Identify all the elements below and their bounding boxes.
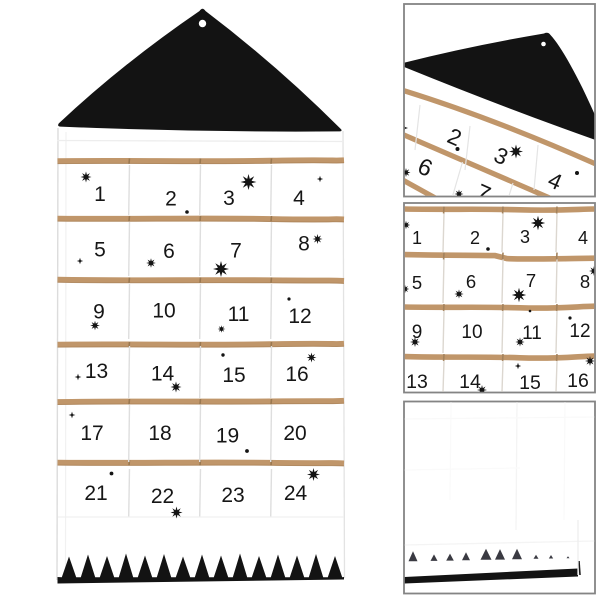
svg-text:12: 12 xyxy=(288,305,311,328)
svg-text:5: 5 xyxy=(94,239,106,262)
svg-text:2: 2 xyxy=(165,188,177,211)
svg-text:17: 17 xyxy=(80,422,103,445)
svg-text:3: 3 xyxy=(223,187,235,210)
svg-text:23: 23 xyxy=(221,484,244,507)
svg-text:13: 13 xyxy=(406,371,428,393)
svg-text:13: 13 xyxy=(85,360,108,383)
svg-text:6: 6 xyxy=(466,271,476,292)
svg-text:11: 11 xyxy=(522,323,542,344)
svg-text:15: 15 xyxy=(222,364,245,387)
svg-text:24: 24 xyxy=(284,482,308,505)
svg-text:16: 16 xyxy=(567,370,589,392)
svg-text:3: 3 xyxy=(520,227,530,247)
svg-text:14: 14 xyxy=(151,363,175,386)
svg-text:4: 4 xyxy=(578,228,588,248)
svg-text:10: 10 xyxy=(461,322,482,343)
svg-text:10: 10 xyxy=(152,300,175,323)
svg-text:8: 8 xyxy=(298,233,310,256)
svg-text:5: 5 xyxy=(412,272,422,293)
svg-text:8: 8 xyxy=(580,271,590,292)
svg-text:7: 7 xyxy=(230,240,242,263)
svg-text:1: 1 xyxy=(94,183,106,206)
svg-text:11: 11 xyxy=(228,303,250,326)
svg-text:19: 19 xyxy=(216,425,239,448)
svg-text:1: 1 xyxy=(412,228,422,248)
svg-text:15: 15 xyxy=(519,372,541,394)
svg-text:2: 2 xyxy=(470,228,480,248)
svg-text:22: 22 xyxy=(151,485,174,508)
svg-text:7: 7 xyxy=(526,270,536,291)
svg-text:20: 20 xyxy=(283,422,306,445)
svg-text:9: 9 xyxy=(93,301,105,324)
svg-text:4: 4 xyxy=(293,187,305,210)
svg-text:18: 18 xyxy=(148,422,171,445)
svg-text:6: 6 xyxy=(163,240,175,263)
svg-text:12: 12 xyxy=(569,321,590,342)
svg-text:21: 21 xyxy=(84,482,107,505)
svg-text:16: 16 xyxy=(285,363,308,386)
svg-text:14: 14 xyxy=(459,371,481,393)
